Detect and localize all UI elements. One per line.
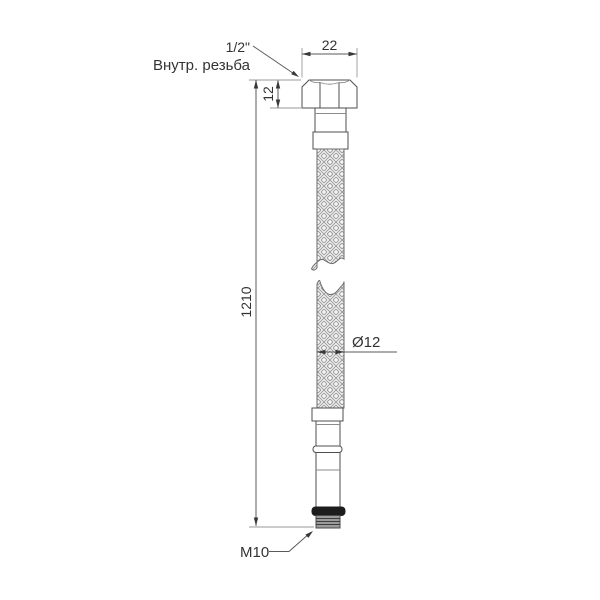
arrowhead-up xyxy=(276,80,280,89)
arrowhead-down xyxy=(254,518,258,527)
bottom-crimp-collar xyxy=(312,408,343,421)
bottom-thread-text: M10 xyxy=(240,544,269,561)
arrowhead-left xyxy=(302,52,311,56)
drawing-canvas: 22 12 1210 Ø12 1/2" Внутр. ре xyxy=(0,0,600,600)
top-thread-leader-line xyxy=(253,46,297,76)
dim-hose-diameter-value: Ø12 xyxy=(352,334,380,351)
arrowhead-up xyxy=(254,80,258,89)
end-tube xyxy=(316,453,340,508)
bottom-thread-leader-line xyxy=(269,533,311,552)
arrowhead-down xyxy=(276,100,280,109)
hose-dimension-diagram: 22 12 1210 Ø12 1/2" Внутр. ре xyxy=(0,0,600,600)
upper-ferrule-neck xyxy=(315,108,346,132)
arrowhead-diagonal xyxy=(291,71,299,77)
label-bottom-thread: M10 xyxy=(240,531,313,561)
rubber-gasket xyxy=(312,507,345,516)
dim-nut-width: 22 xyxy=(302,37,357,78)
dim-nut-width-value: 22 xyxy=(322,37,338,53)
dim-nut-height-value: 12 xyxy=(260,86,276,102)
top-thread-type-text: Внутр. резьба xyxy=(153,57,251,74)
dim-total-length-value: 1210 xyxy=(238,286,254,317)
dim-total-length-ext-lines xyxy=(249,80,314,527)
upper-crimp-collar xyxy=(313,132,348,149)
bulge-ring xyxy=(313,446,342,453)
dim-total-length: 1210 xyxy=(238,80,314,527)
top-thread-size-text: 1/2" xyxy=(226,39,250,55)
hose-body xyxy=(302,80,357,528)
braided-hose-lower xyxy=(317,280,344,408)
braided-hose-upper xyxy=(312,149,345,270)
dim-nut-height: 12 xyxy=(260,80,301,108)
arrowhead-right xyxy=(349,52,358,56)
label-top-thread: 1/2" Внутр. резьба xyxy=(153,39,299,77)
arrowhead-diagonal xyxy=(305,531,313,538)
